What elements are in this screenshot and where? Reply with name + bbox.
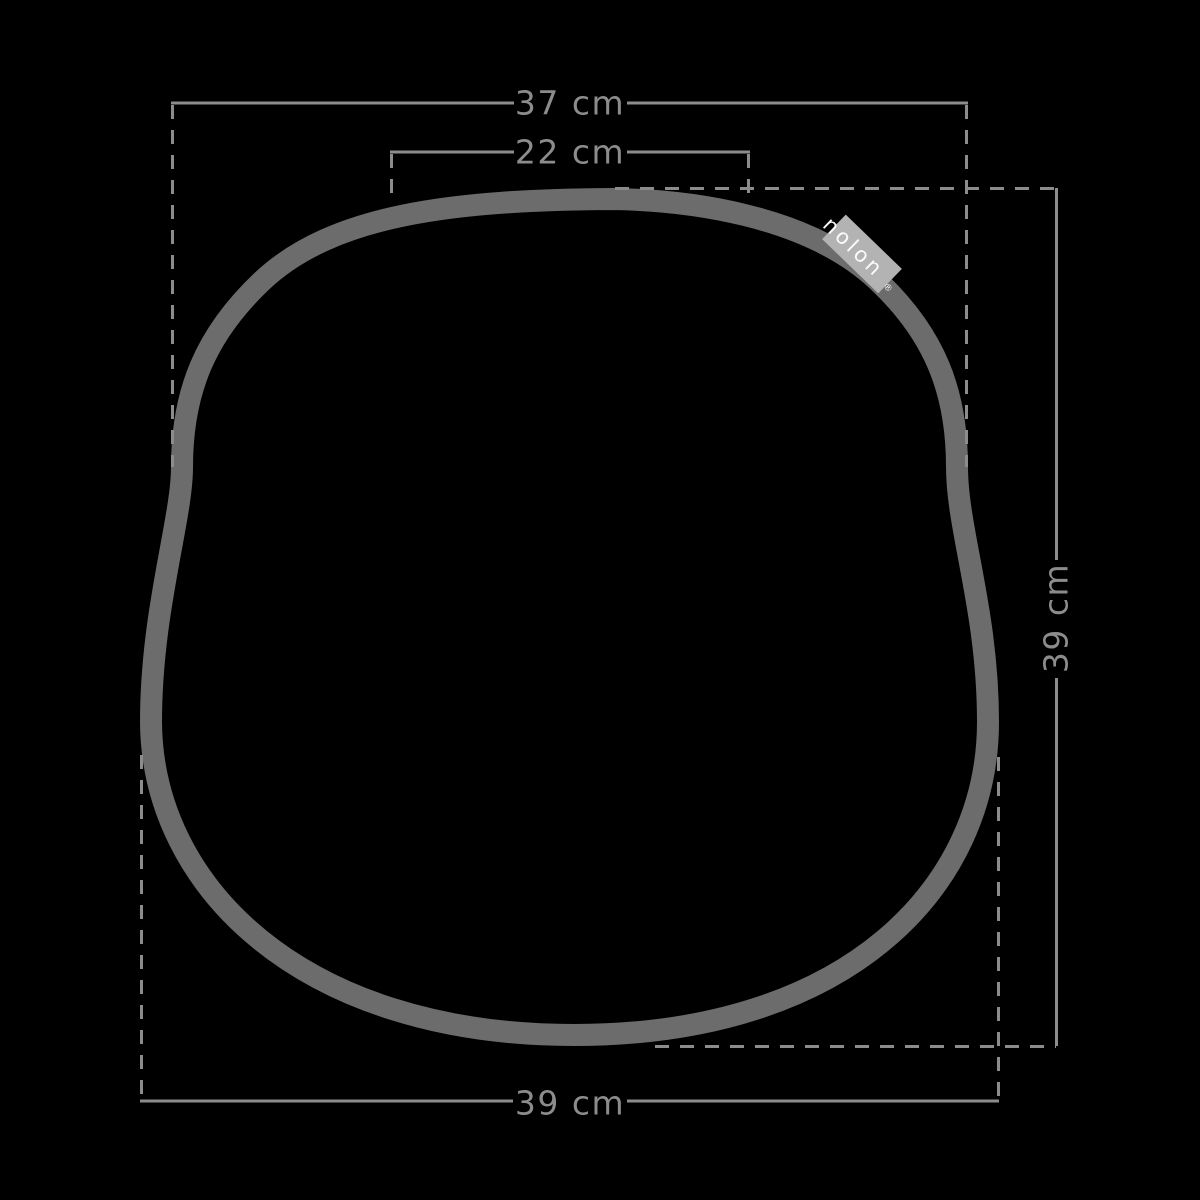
dim-inner-width-label: 22 cm bbox=[515, 133, 625, 172]
dim-bottom-width-label: 39 cm bbox=[515, 1084, 625, 1123]
dim-side-height-label: 39 cm bbox=[1037, 563, 1076, 673]
dimension-diagram: 37 cm 22 cm 39 cm 39 cm nolon ® bbox=[0, 0, 1200, 1200]
dim-top-width-label: 37 cm bbox=[515, 84, 625, 123]
diagram-background bbox=[0, 0, 1200, 1200]
